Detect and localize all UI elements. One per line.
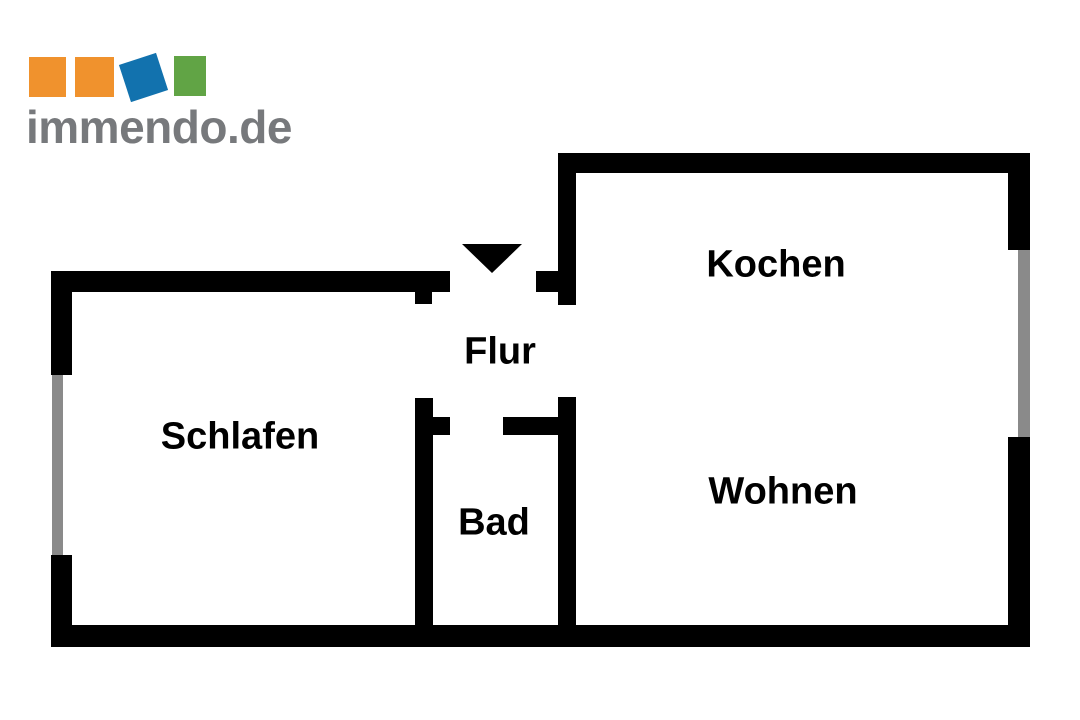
wall-bottom xyxy=(51,625,1030,647)
window-left xyxy=(52,375,63,555)
logo-green-square xyxy=(174,56,206,96)
wall-right-upper xyxy=(1008,153,1030,250)
wall-schlafen-door-jamb xyxy=(415,292,432,304)
wall-center-upper xyxy=(558,153,576,305)
wall-kochen-top xyxy=(558,153,1030,173)
logo-orange-square-2 xyxy=(75,57,114,97)
wall-left-upper xyxy=(51,271,72,375)
entrance-arrow-icon xyxy=(462,244,522,273)
room-label-bad: Bad xyxy=(458,502,530,545)
wall-bad-right-stub xyxy=(503,417,558,435)
room-label-schlafen: Schlafen xyxy=(161,416,319,459)
room-label-flur: Flur xyxy=(464,331,536,374)
logo-text: immendo.de xyxy=(26,100,292,154)
window-right xyxy=(1018,250,1030,437)
logo-blue-tilted-square xyxy=(119,53,168,102)
room-label-kochen: Kochen xyxy=(706,244,845,287)
wall-schlafen-bad-divider xyxy=(415,398,433,647)
wall-center-lower xyxy=(558,397,576,647)
room-label-wohnen: Wohnen xyxy=(708,471,857,514)
logo-orange-square-1 xyxy=(29,57,66,97)
wall-schlafen-top xyxy=(51,271,450,292)
wall-right-lower xyxy=(1008,437,1030,647)
floorplan-image: immendo.de Schlafen Flur Bad Kochen Wohn… xyxy=(0,0,1080,720)
wall-entrance-right-jamb xyxy=(536,271,558,292)
wall-bad-left-stub xyxy=(433,417,450,435)
